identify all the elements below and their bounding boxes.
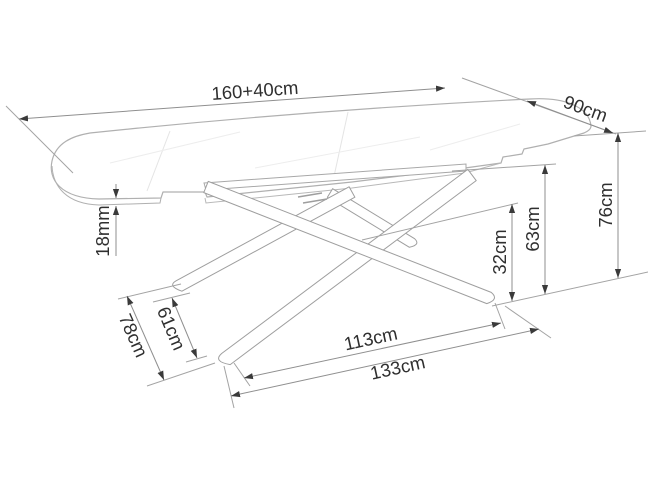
table-dimension-diagram-page: 160+40cm 90cm 76cm 63cm 32cm 18mm 78cm (0, 0, 648, 486)
extension-span-inner-left (234, 363, 250, 386)
dim-frame-height: 63cm (522, 165, 545, 294)
dim-base-depth: 78cm (115, 296, 164, 380)
dim-foot-length: 61cm (153, 298, 197, 358)
dim-label-frame-height: 63cm (522, 206, 543, 251)
extension-front-left-foot-outer (147, 363, 215, 386)
dim-label-cross-height: 32cm (489, 229, 510, 274)
dim-label-table-height: 76cm (595, 182, 616, 227)
extension-foot-inner-top (153, 293, 190, 302)
dim-label-base-depth: 78cm (115, 310, 153, 360)
extension-span-inner-right (495, 303, 505, 329)
extension-span-outer-right (505, 306, 551, 338)
extending-table-dimension-drawing: 160+40cm 90cm 76cm 63cm 32cm 18mm 78cm (0, 0, 648, 486)
extension-span-outer-left (224, 366, 234, 408)
tabletop-surface (51, 99, 591, 199)
dim-label-top-thickness: 18mm (92, 205, 113, 256)
dim-label-base-span-outer: 133cm (368, 351, 427, 383)
dim-label-base-span-inner: 113cm (342, 322, 399, 354)
dim-table-height: 76cm (595, 133, 618, 278)
extension-floor (492, 272, 648, 306)
dim-cross-height: 32cm (489, 204, 512, 301)
